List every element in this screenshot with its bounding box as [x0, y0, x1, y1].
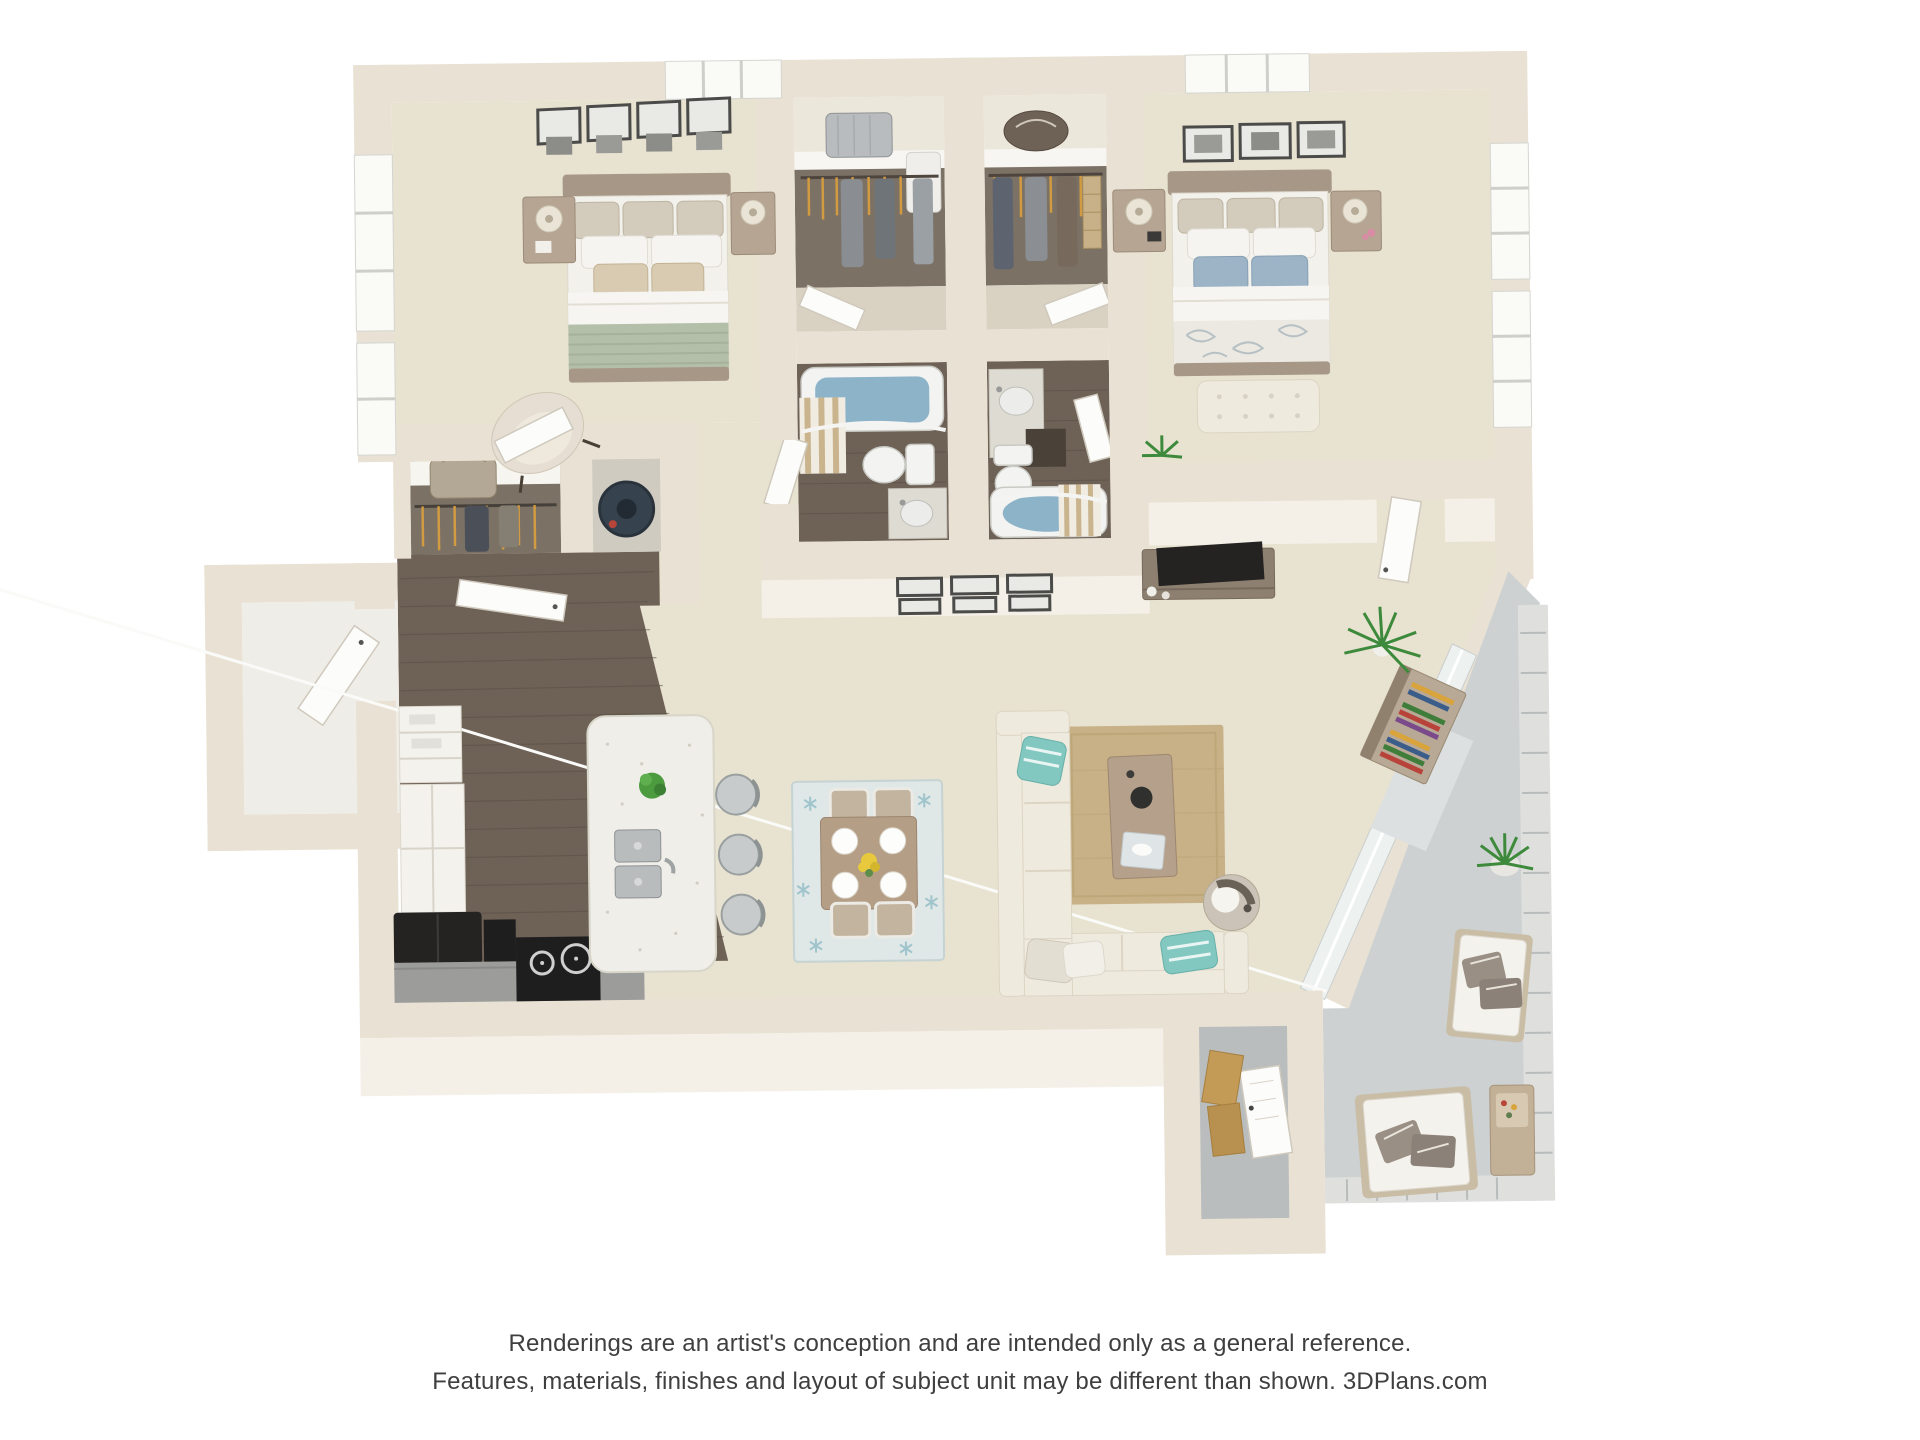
- utility-closet: [592, 459, 661, 553]
- bath1-vanity: [888, 488, 947, 539]
- bar-stools[interactable]: [716, 774, 764, 935]
- bath1-shower-curtain: [799, 397, 846, 474]
- closet2-duffel-bag: [1004, 111, 1068, 152]
- sofa-arm-right: [1224, 931, 1249, 993]
- closet2-garment: [1057, 176, 1078, 266]
- bed2-pillow: [1279, 197, 1323, 232]
- place-setting: [832, 828, 858, 854]
- bed2-nightstand-right: [1331, 191, 1382, 252]
- tv-area: [1142, 541, 1275, 599]
- coat-closet-left-wall: [393, 447, 411, 559]
- bed1-nightstand-right: [731, 192, 776, 255]
- kitchen-cabinets-left: [400, 784, 466, 913]
- nightstand-clock: [1147, 231, 1161, 241]
- bed2-pillow: [1187, 228, 1249, 259]
- bed2-nightstand-left: [1113, 189, 1166, 252]
- kitchen-left-wall-lower: [356, 701, 400, 1005]
- closet2-garment: [1025, 177, 1048, 261]
- side-table-lamp: [1203, 874, 1260, 931]
- stove: [516, 936, 601, 1001]
- tv-screen: [1156, 541, 1264, 586]
- kitchen-left-wall-upper: [354, 563, 395, 609]
- place-setting: [880, 872, 906, 898]
- bed1-accent-pillow: [652, 263, 704, 296]
- dining-chair[interactable]: [831, 903, 869, 937]
- floor-plan-render: [0, 0, 1920, 1260]
- bed1-sheet: [568, 291, 728, 327]
- walk-in-closet-1: [794, 96, 947, 332]
- bed-2: [1168, 169, 1334, 376]
- place-setting: [832, 872, 858, 898]
- bedroom2-bottom-wall-face-left: [1149, 500, 1378, 546]
- bed2-blue-pillow: [1194, 256, 1248, 291]
- bed1-pillow: [651, 235, 721, 268]
- coat-garment: [465, 506, 490, 552]
- closet-bath-divider-wall-1: [943, 58, 989, 540]
- bed1-pillow: [623, 201, 673, 238]
- bed2-pillow: [1253, 228, 1315, 259]
- closet1-garment: [841, 179, 864, 267]
- bedroom1-window-2: [357, 343, 396, 455]
- bed2-pillow: [1227, 198, 1275, 233]
- storage-box: [1207, 1103, 1245, 1156]
- top-wall-window-1: [665, 60, 781, 99]
- sofa-teal-pillow: [1160, 929, 1219, 975]
- walk-in-closet-2: [984, 94, 1111, 329]
- coat-closet-suitcase: [430, 458, 496, 499]
- pantry-shelves: [399, 706, 462, 783]
- bed1-pillow: [677, 201, 723, 238]
- closet1-garment: [875, 179, 896, 259]
- kitchen-dark-cabinet: [484, 919, 517, 963]
- dining-area: [792, 780, 944, 962]
- sofa-white-pillow: [1062, 940, 1106, 978]
- bedroom2-bottom-wall-face-right: [1445, 498, 1500, 542]
- floor-plan: [0, 51, 1556, 1260]
- bed2-footboard: [1174, 361, 1330, 376]
- closet2-garment: [993, 177, 1014, 269]
- bath2-shower-curtain: [1058, 484, 1101, 537]
- closet1-garment: [913, 178, 934, 264]
- bedroom2-window-1: [1490, 143, 1530, 279]
- closet1-suitcase: [826, 113, 893, 158]
- porch-left-wall: [204, 565, 244, 851]
- place-setting: [880, 828, 906, 854]
- bedroom2-window-2: [1492, 291, 1532, 427]
- bedroom2-bottom-wall: [1148, 458, 1498, 502]
- coat-garment: [499, 505, 520, 547]
- disclaimer-line-1: Renderings are an artist's conception an…: [0, 1330, 1920, 1358]
- closet2-shelf: [984, 148, 1106, 167]
- bathroom-2: [987, 360, 1115, 540]
- kitchen-island: [587, 715, 716, 973]
- bedroom2-gallery-frames: [1184, 122, 1344, 161]
- dining-chair[interactable]: [875, 902, 913, 936]
- bed1-pillow: [573, 202, 619, 239]
- bedroom2-left-wall: [1105, 56, 1149, 576]
- nightstand-book: [535, 241, 551, 253]
- bedroom1-window-1: [354, 155, 394, 331]
- bed2-bench: [1197, 379, 1320, 432]
- sofa-arm-top: [996, 711, 1069, 736]
- disclaimer-line-2: Features, materials, finishes and layout…: [0, 1368, 1920, 1396]
- closet-bathroom-wall: [796, 328, 1108, 364]
- floor-plan-page: Renderings are an artist's conception an…: [0, 0, 1920, 1440]
- closet-divider-wall: [560, 459, 593, 552]
- bed2-pillow: [1178, 199, 1223, 234]
- coffee-table: [1108, 754, 1178, 879]
- bed1-footboard: [569, 367, 729, 383]
- storage-closet: [1163, 990, 1326, 1255]
- bed1-nightstand-left: [523, 197, 576, 264]
- bed1-accent-pillow: [594, 264, 648, 297]
- closet2-rod: [989, 174, 1103, 175]
- top-wall-window-2: [1185, 54, 1309, 94]
- bath-block-bottom-wall: [761, 538, 1149, 581]
- balcony-side-table: [1490, 1085, 1535, 1176]
- sofa-teal-pillow: [1016, 735, 1068, 787]
- utility-right-wall: [660, 443, 700, 605]
- balcony-lounge-chair-1: [1446, 928, 1534, 1043]
- floor-plan-svg: [0, 0, 1920, 1260]
- balcony-lounge-chair-2: [1354, 1086, 1478, 1199]
- bed2-blue-pillow: [1252, 256, 1308, 291]
- bed2-sheet: [1173, 285, 1329, 325]
- bottom-exterior-wall-face: [360, 1028, 1168, 1096]
- bed-1: [563, 173, 734, 383]
